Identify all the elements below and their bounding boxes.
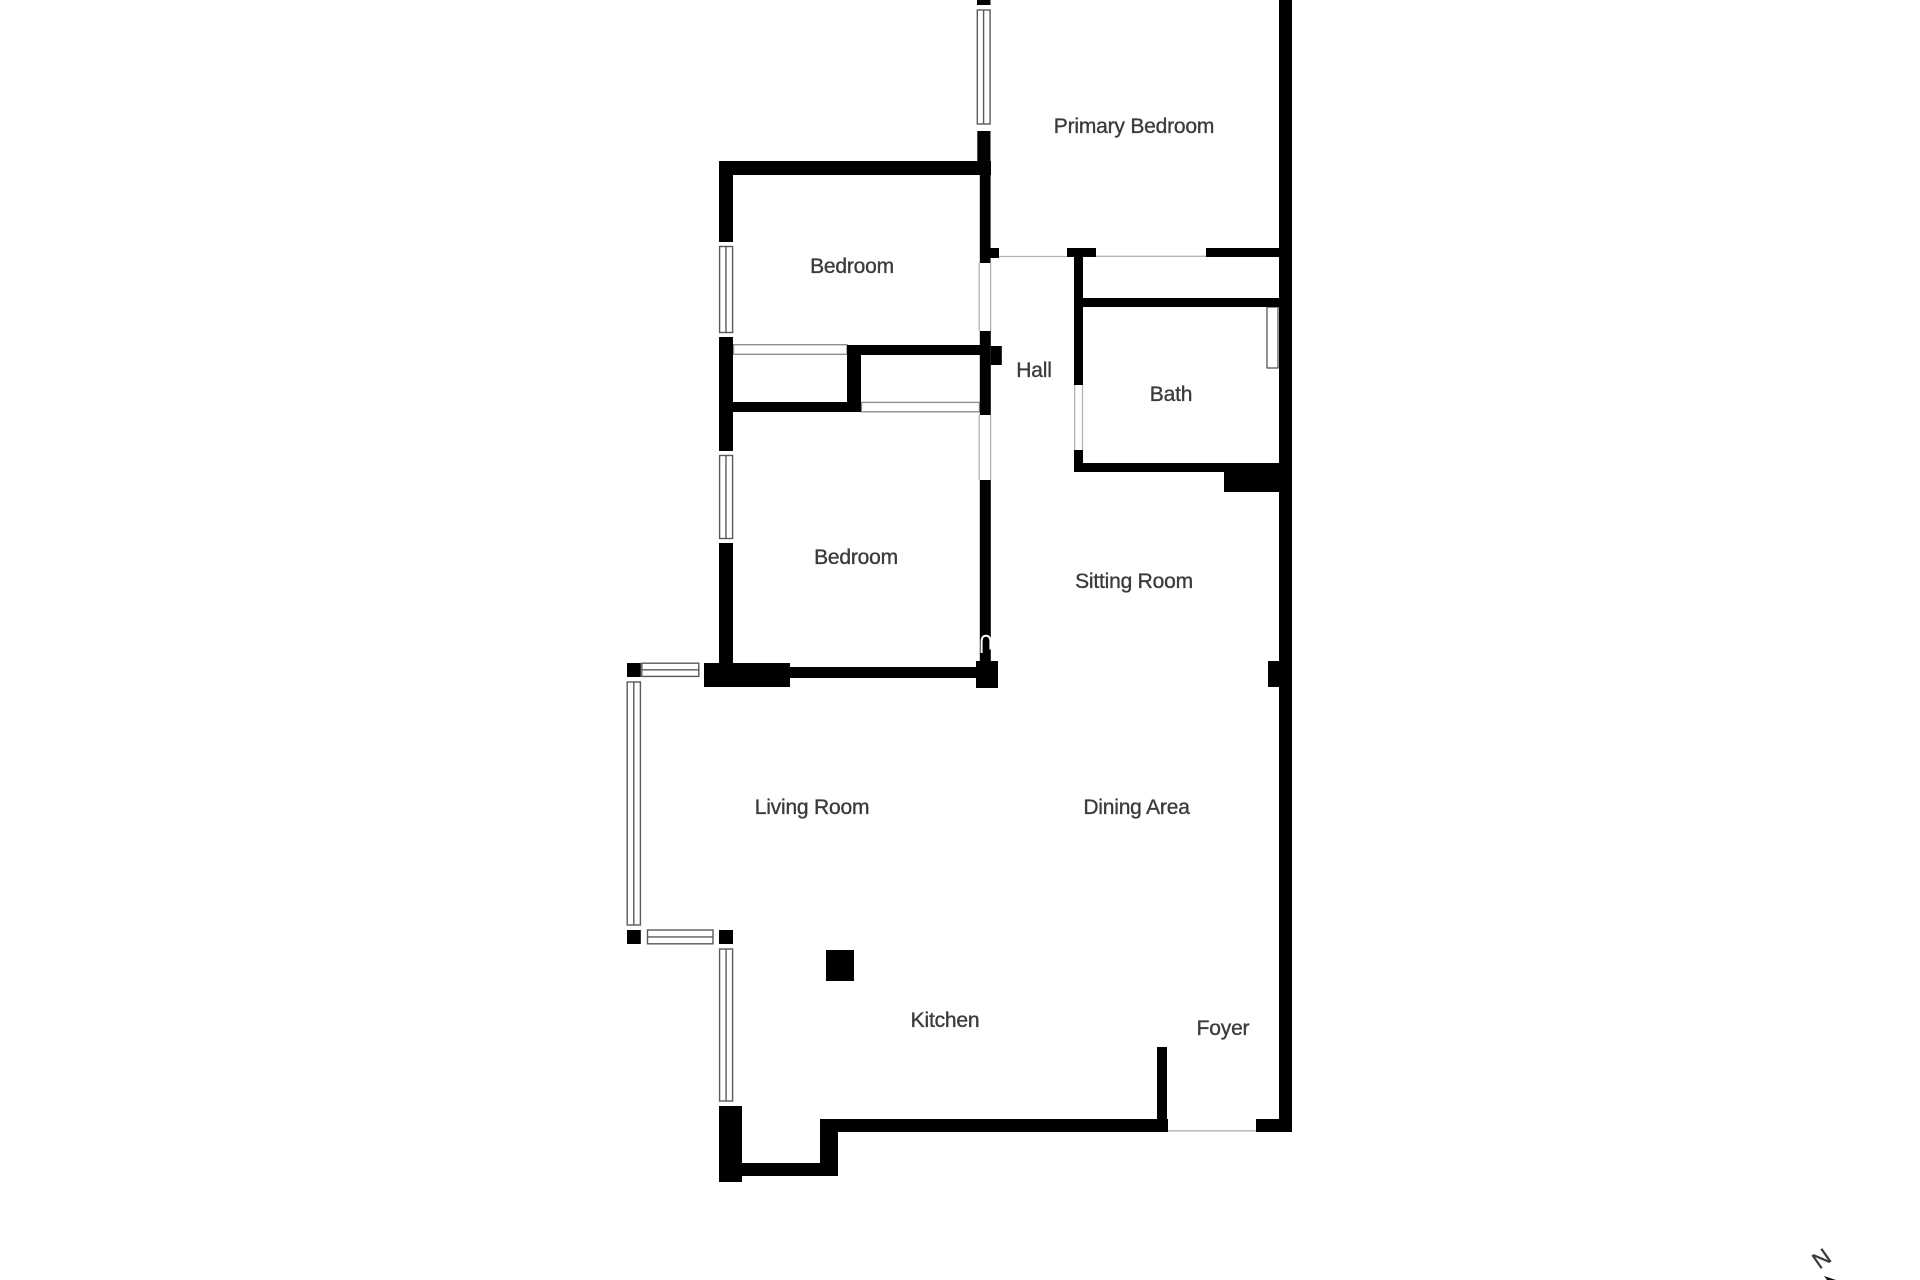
svg-text:Bedroom: Bedroom bbox=[810, 255, 894, 278]
svg-text:Bath: Bath bbox=[1150, 383, 1192, 406]
svg-text:Foyer: Foyer bbox=[1197, 1017, 1250, 1040]
svg-text:Primary Bedroom: Primary Bedroom bbox=[1054, 115, 1214, 138]
svg-text:Kitchen: Kitchen bbox=[911, 1009, 980, 1032]
svg-text:Living Room: Living Room bbox=[755, 796, 870, 819]
svg-text:Sitting Room: Sitting Room bbox=[1075, 570, 1193, 593]
svg-text:Hall: Hall bbox=[1016, 359, 1051, 382]
svg-text:Dining Area: Dining Area bbox=[1083, 796, 1190, 819]
svg-text:Bedroom: Bedroom bbox=[814, 546, 898, 569]
